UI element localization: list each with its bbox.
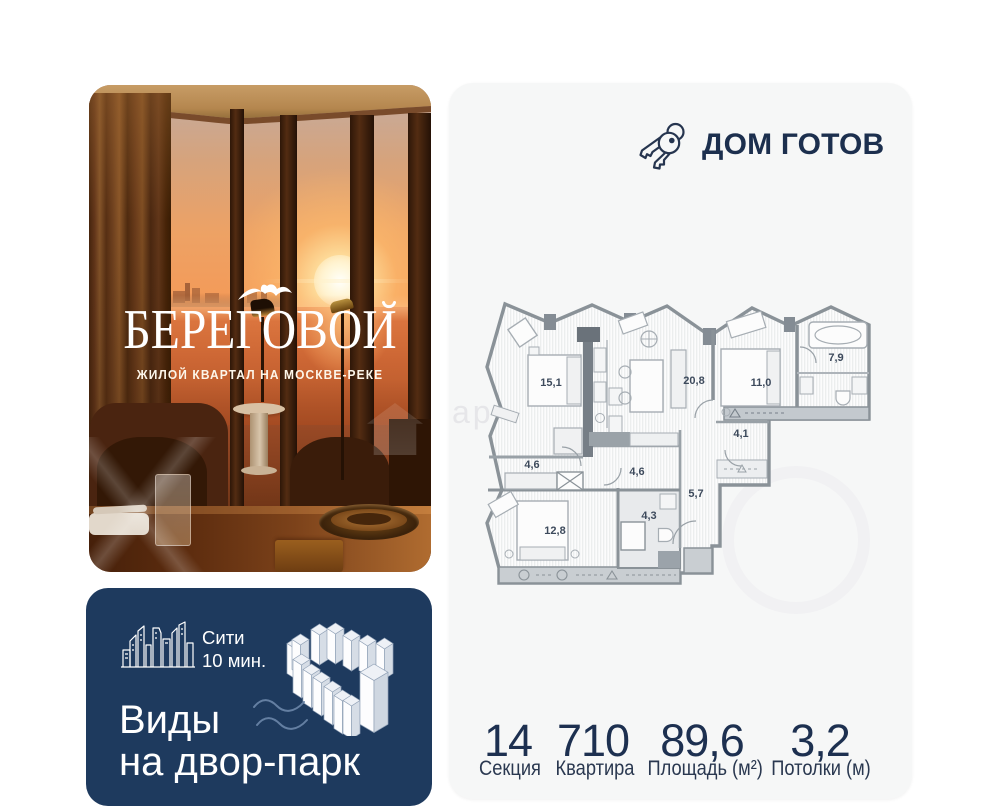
svg-text:4,6: 4,6 [524, 459, 539, 471]
svg-text:11,0: 11,0 [751, 377, 772, 389]
svg-text:4,3: 4,3 [641, 510, 656, 522]
svg-text:4,6: 4,6 [629, 466, 644, 478]
svg-text:20,8: 20,8 [683, 375, 704, 387]
svg-text:7,9: 7,9 [828, 352, 843, 364]
svg-text:15,1: 15,1 [540, 377, 561, 389]
svg-text:12,8: 12,8 [544, 525, 565, 537]
svg-text:5,7: 5,7 [688, 488, 703, 500]
svg-text:4,1: 4,1 [733, 428, 748, 440]
